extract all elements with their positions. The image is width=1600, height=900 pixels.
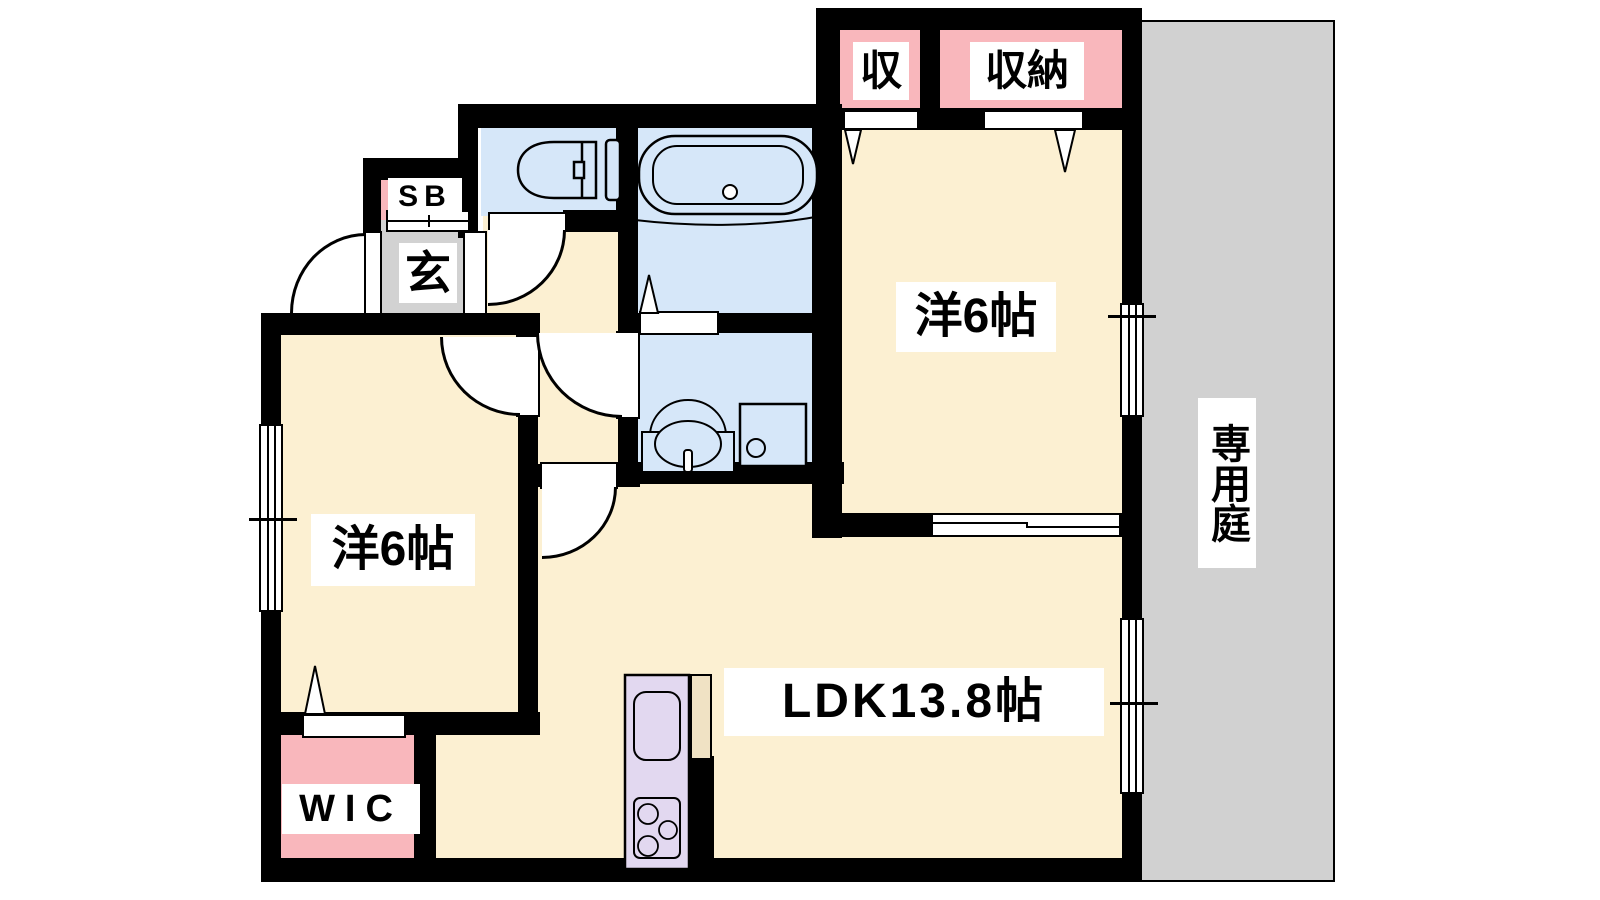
kitchen-icon xyxy=(622,672,694,872)
window-bedroom-right xyxy=(1120,303,1144,417)
wall xyxy=(563,210,638,232)
sliding-door-to-garden xyxy=(931,513,1121,537)
wall xyxy=(363,158,381,235)
toilet-door-opening xyxy=(488,212,567,232)
wall xyxy=(261,313,540,335)
ldk-door-opening xyxy=(540,462,618,489)
floor-plan: 収 収納 洋6帖 洋6帖 LDK13.8帖 WIC SB 玄 専用庭 xyxy=(0,0,1600,900)
wall xyxy=(816,8,1142,30)
closet-large-folding-door-icon xyxy=(1053,128,1077,174)
entrance-label: 玄 xyxy=(399,243,457,303)
window-tick xyxy=(249,518,297,521)
wall xyxy=(920,24,940,120)
entrance-hall-opening xyxy=(463,231,487,315)
closet-small-folding-door-icon xyxy=(843,128,863,166)
wall xyxy=(261,712,281,882)
washbasin-icon xyxy=(638,390,738,474)
entrance-door-leaf xyxy=(364,231,382,315)
bedroom-right-label: 洋6帖 xyxy=(896,282,1056,352)
entrance-door-swing xyxy=(290,233,366,313)
washing-machine-icon xyxy=(734,396,814,472)
ldk-label: LDK13.8帖 xyxy=(724,668,1104,736)
wic-label: WIC xyxy=(282,784,420,834)
wall xyxy=(458,104,842,128)
closet-large-opening xyxy=(983,110,1084,130)
closet-large-label: 収納 xyxy=(970,42,1084,100)
bathtub-icon xyxy=(633,130,823,228)
closet-small-opening xyxy=(843,110,919,130)
garden-label: 専用庭 xyxy=(1198,398,1256,568)
closet-small-label: 収 xyxy=(853,42,909,100)
window-tick xyxy=(1110,702,1158,705)
wic-folding-door-icon xyxy=(301,664,329,716)
bedroom-left-label: 洋6帖 xyxy=(311,514,475,586)
window-ldk xyxy=(1120,618,1144,794)
wic-folding-door xyxy=(302,714,406,738)
ldk-floor-west xyxy=(433,730,545,868)
toilet-icon xyxy=(508,136,626,204)
bathroom-folding-door-icon xyxy=(637,273,661,315)
shoe-box-label: SB xyxy=(388,178,462,215)
window-tick xyxy=(1108,315,1156,318)
